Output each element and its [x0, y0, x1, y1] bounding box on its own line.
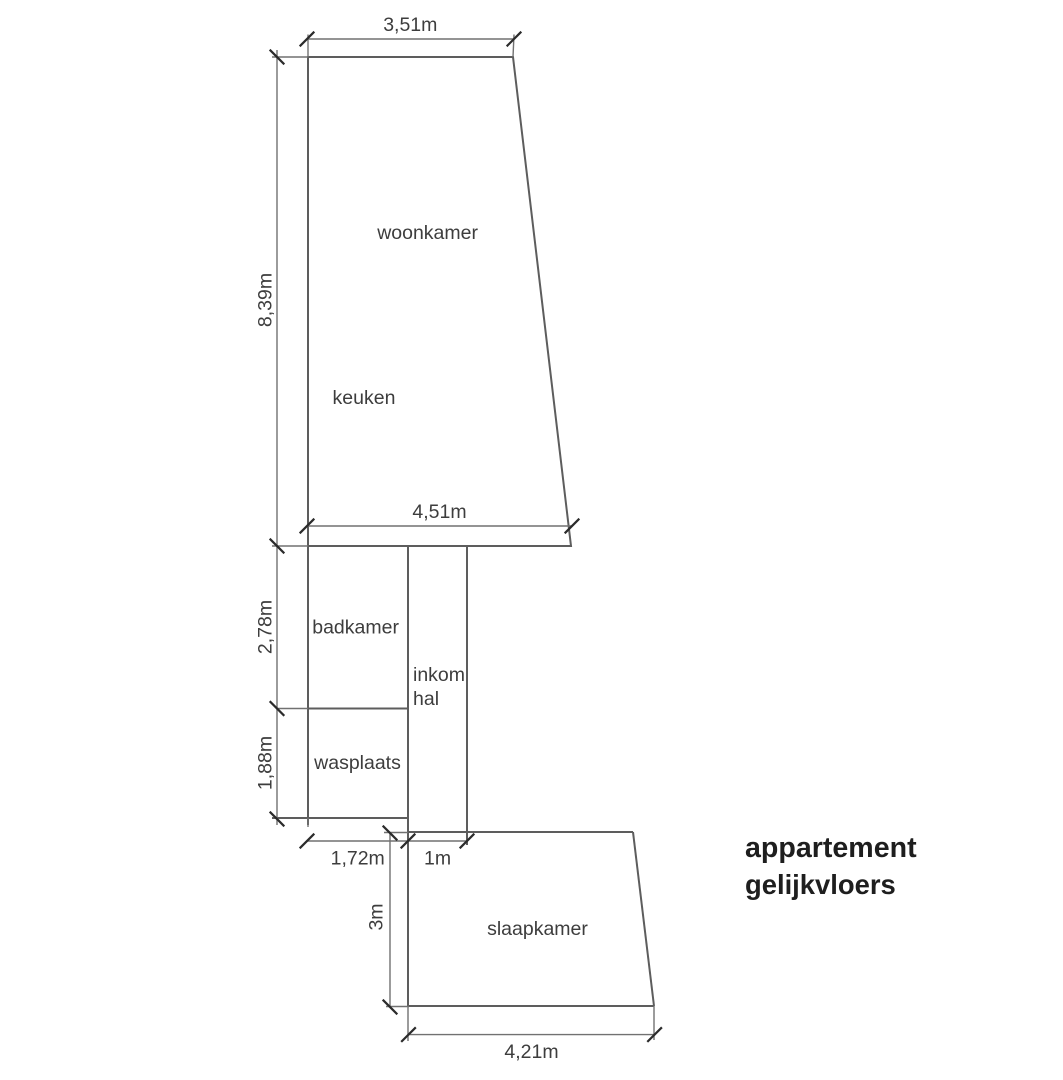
svg-text:wasplaats: wasplaats	[313, 752, 401, 774]
svg-text:keuken: keuken	[333, 387, 396, 409]
svg-text:1m: 1m	[424, 848, 451, 870]
svg-text:4,51m: 4,51m	[412, 501, 466, 523]
svg-text:3,51m: 3,51m	[383, 14, 437, 36]
svg-text:woonkamer: woonkamer	[376, 222, 478, 244]
svg-text:hal: hal	[413, 688, 439, 710]
svg-text:1,72m: 1,72m	[331, 848, 385, 870]
svg-text:2,78m: 2,78m	[255, 600, 277, 654]
svg-text:3m: 3m	[366, 903, 388, 930]
svg-text:inkom: inkom	[413, 664, 465, 686]
svg-text:4,21m: 4,21m	[504, 1041, 558, 1063]
svg-text:gelijkvloers: gelijkvloers	[745, 869, 896, 900]
svg-text:8,39m: 8,39m	[255, 273, 277, 327]
svg-text:1,88m: 1,88m	[255, 736, 277, 790]
svg-text:badkamer: badkamer	[312, 617, 399, 639]
svg-text:appartement: appartement	[745, 832, 917, 864]
svg-text:slaapkamer: slaapkamer	[487, 918, 588, 940]
